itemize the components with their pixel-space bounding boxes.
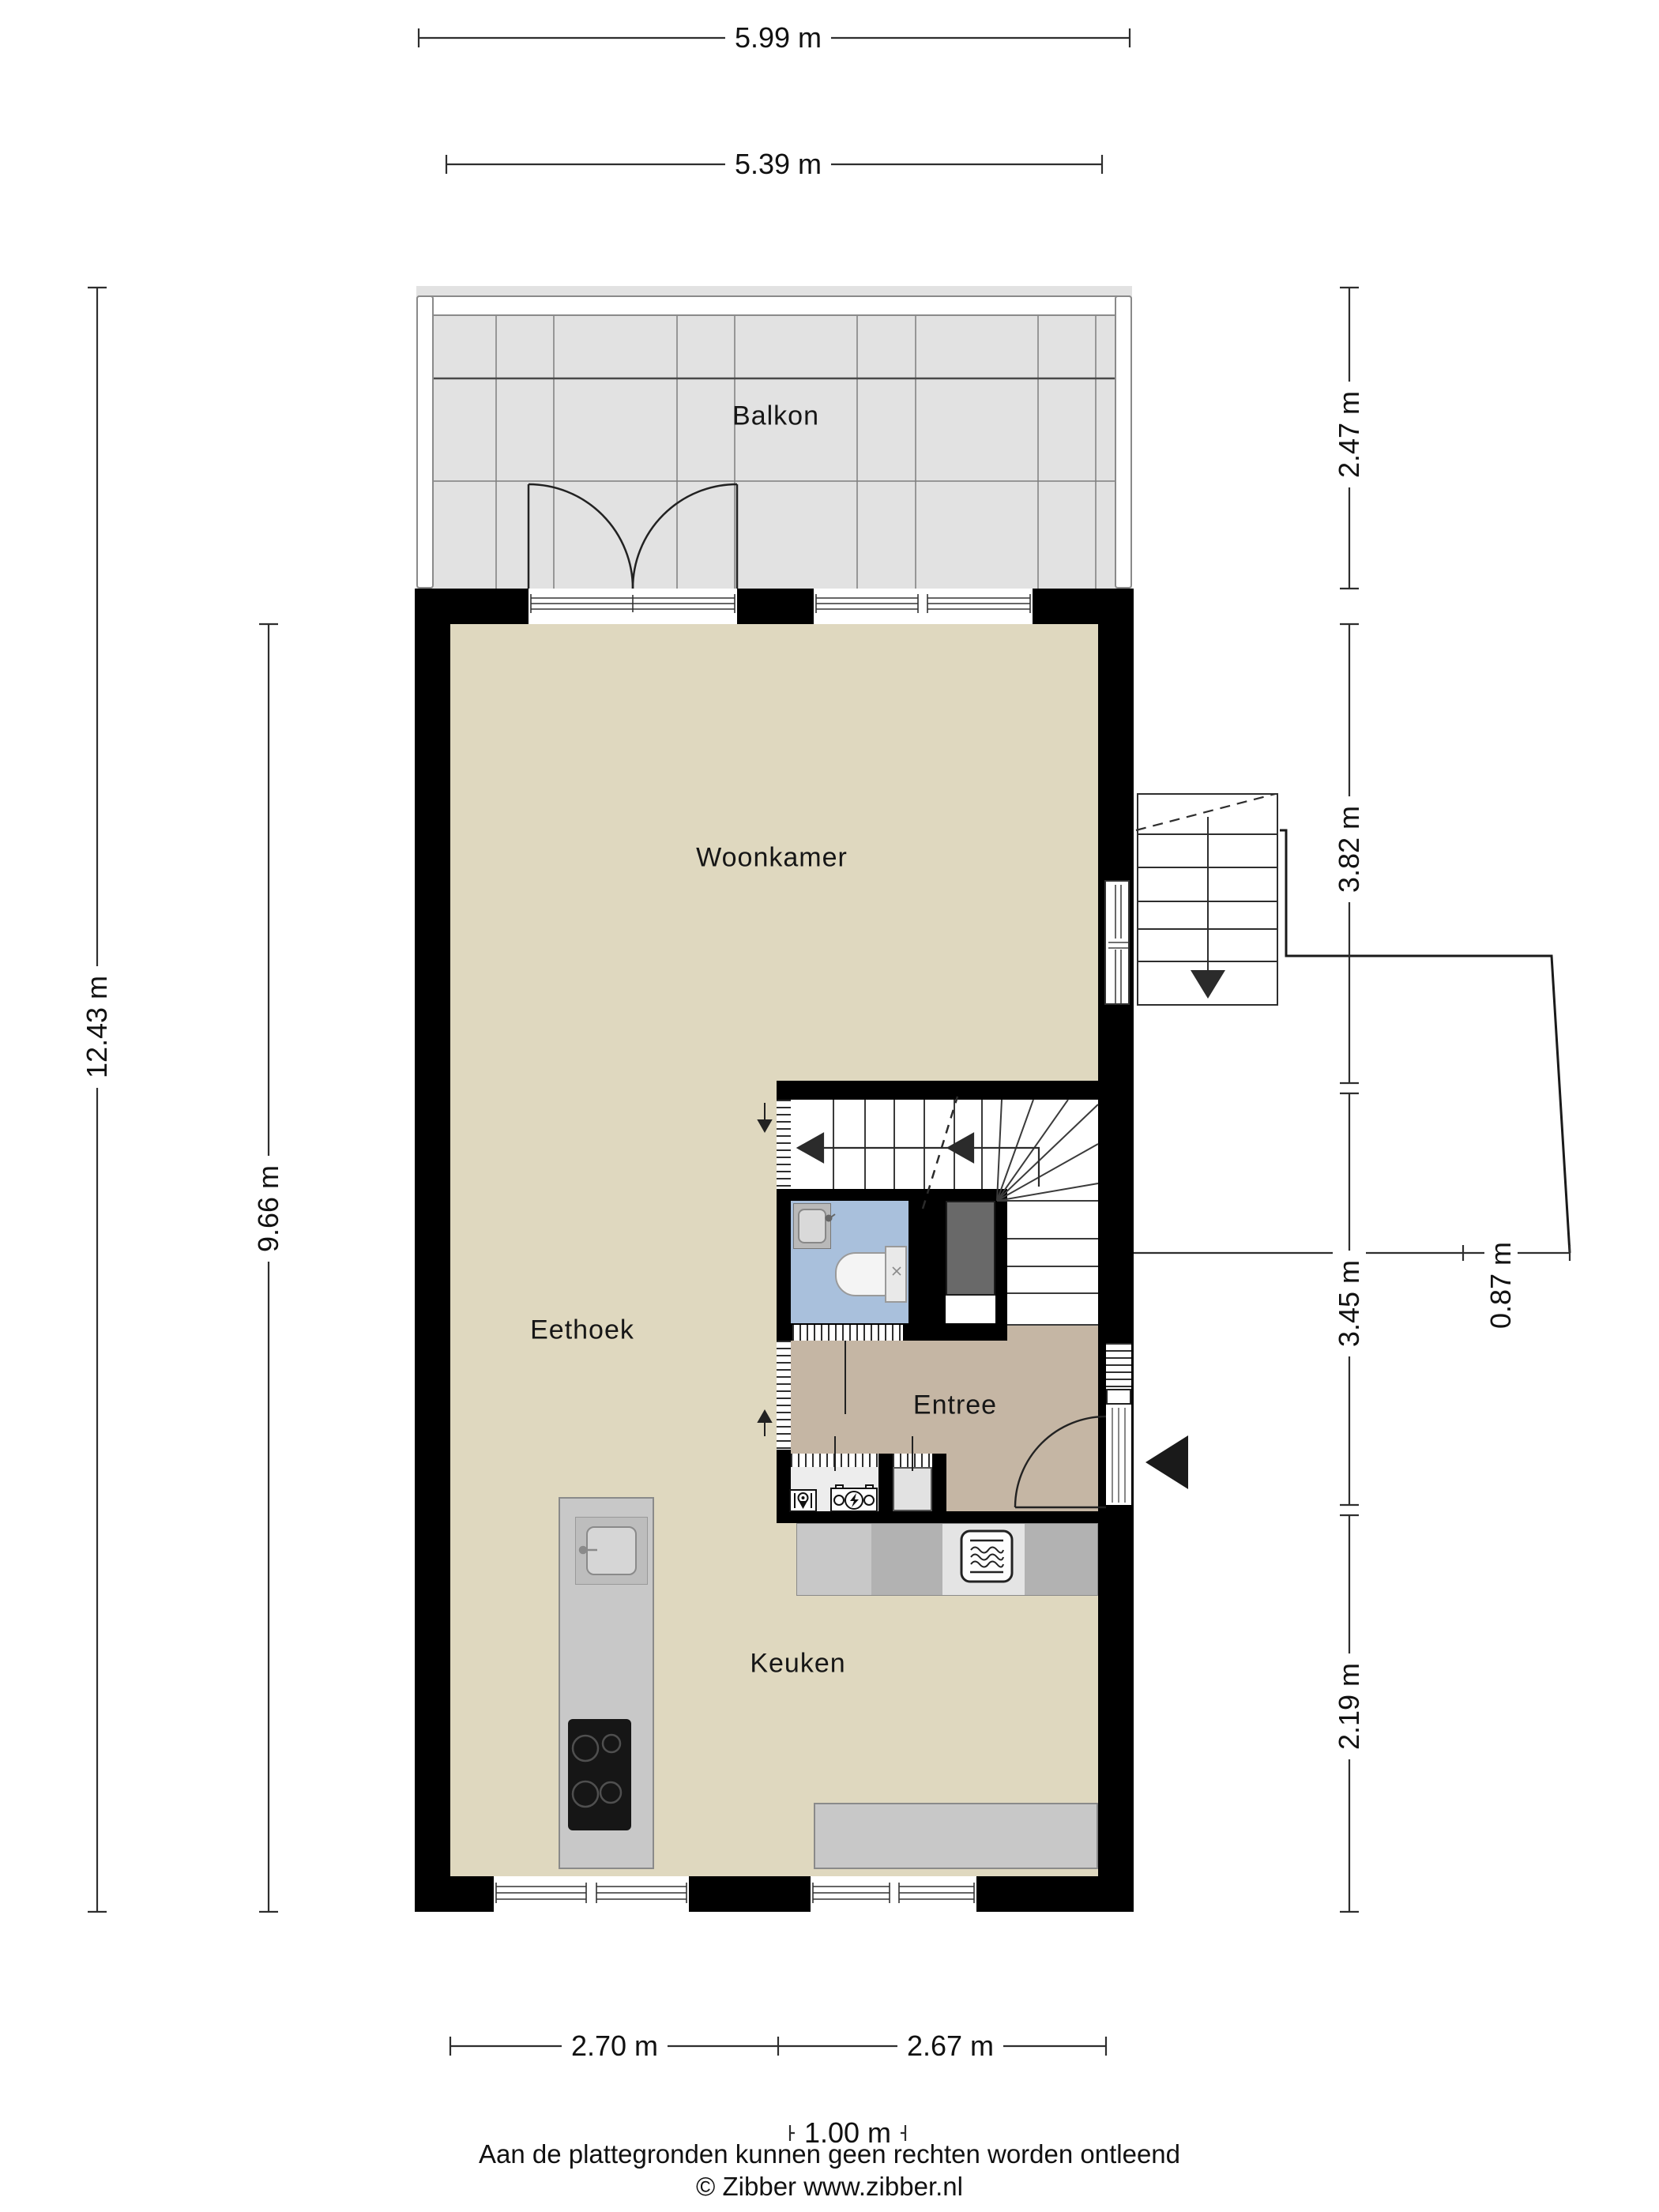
footer-copyright: © Zibber www.zibber.nl — [696, 2172, 963, 2202]
footer-disclaimer: Aan de plattegronden kunnen geen rechten… — [479, 2139, 1180, 2169]
entry-landing-boundary — [1280, 830, 1570, 1253]
stair-section-line — [923, 1097, 957, 1209]
dim-bottom-left: 2.70 m — [562, 2030, 668, 2063]
dim-bottom-right: 2.67 m — [897, 2030, 1003, 2063]
island-faucet — [580, 1547, 597, 1553]
dim-top-inner: 5.39 m — [725, 148, 831, 181]
entry-door — [1015, 1408, 1125, 1507]
room-label-keuken: Keuken — [750, 1649, 845, 1680]
dim-top-outer: 5.99 m — [725, 21, 831, 55]
room-label-balkon: Balkon — [732, 401, 819, 432]
top-wall-glazing — [531, 594, 1030, 613]
dim-entry-landing: 0.87 m — [1484, 1232, 1518, 1338]
room-label-eethoek: Eethoek — [530, 1315, 634, 1346]
dim-left-outer: 12.43 m — [81, 966, 114, 1088]
dim-right-kitchen: 2.19 m — [1333, 1653, 1366, 1759]
dim-left-inner: 9.66 m — [252, 1156, 285, 1262]
interior-stairs — [833, 1100, 1098, 1325]
room-label-entree: Entree — [913, 1390, 997, 1421]
dim-right-balcony: 2.47 m — [1333, 382, 1366, 487]
bottom-wall-glazing — [496, 1883, 974, 1903]
stairwell-window-glazing — [1108, 885, 1128, 1003]
bathroom-details — [826, 1214, 901, 1414]
microwave-icon — [961, 1531, 1012, 1582]
closet-door-marks — [835, 1436, 912, 1471]
room-label-woonkamer: Woonkamer — [696, 843, 848, 874]
water-meter-icon — [790, 1490, 816, 1511]
floorplan-canvas: Balkon Woonkamer Eethoek Entree Keuken 5… — [0, 0, 1659, 2212]
entrance-arrow — [1145, 1435, 1188, 1489]
balcony-tile-grid — [434, 316, 1115, 589]
dimension-lines — [88, 28, 1570, 2141]
cooktop-burners — [573, 1735, 621, 1807]
balcony-french-doors — [529, 484, 737, 589]
dim-right-living: 3.82 m — [1333, 796, 1366, 902]
window-direction-arrows — [758, 1103, 771, 1436]
linework-overlay — [0, 0, 1659, 2212]
electric-meter-icon — [831, 1485, 877, 1511]
dim-right-hall: 3.45 m — [1333, 1251, 1366, 1356]
